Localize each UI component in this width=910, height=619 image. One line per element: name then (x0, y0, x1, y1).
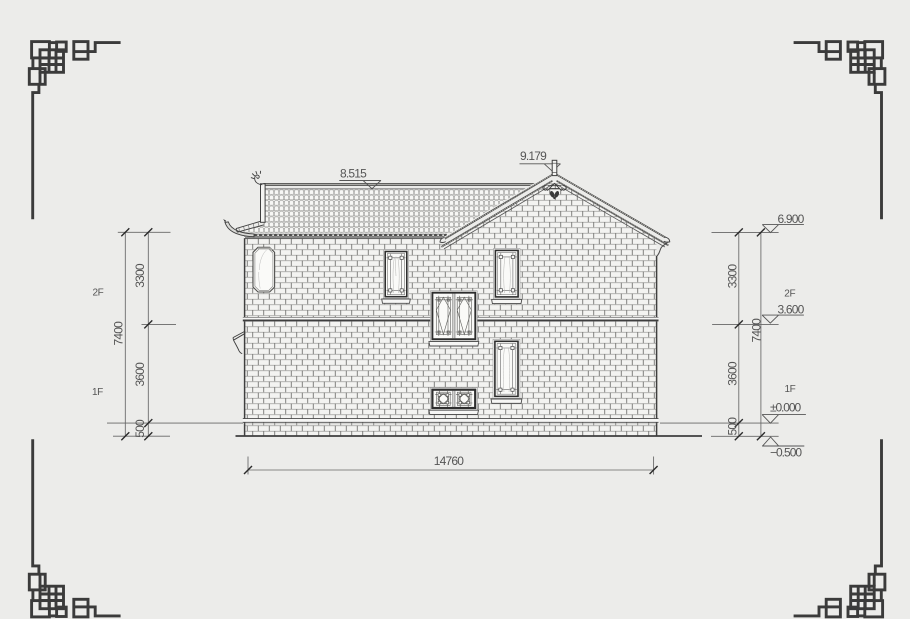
svg-text:7400: 7400 (112, 321, 126, 346)
svg-text:3600: 3600 (726, 361, 740, 386)
svg-text:500: 500 (726, 417, 740, 436)
svg-text:500: 500 (133, 419, 147, 438)
svg-text:1F: 1F (785, 384, 796, 395)
svg-text:7400: 7400 (750, 318, 764, 343)
svg-text:−0.500: −0.500 (770, 445, 802, 459)
svg-text:3300: 3300 (133, 263, 147, 288)
svg-text:±0.000: ±0.000 (770, 400, 801, 414)
svg-text:3600: 3600 (133, 362, 147, 387)
svg-text:3300: 3300 (726, 264, 740, 289)
svg-text:6.900: 6.900 (778, 212, 805, 226)
svg-text:3.600: 3.600 (778, 302, 805, 316)
svg-text:2F: 2F (93, 288, 104, 299)
svg-text:2F: 2F (784, 289, 795, 300)
svg-text:1F: 1F (92, 387, 103, 398)
svg-text:14760: 14760 (434, 454, 464, 468)
svg-text:9.179: 9.179 (520, 149, 547, 163)
svg-text:8.515: 8.515 (340, 166, 367, 180)
